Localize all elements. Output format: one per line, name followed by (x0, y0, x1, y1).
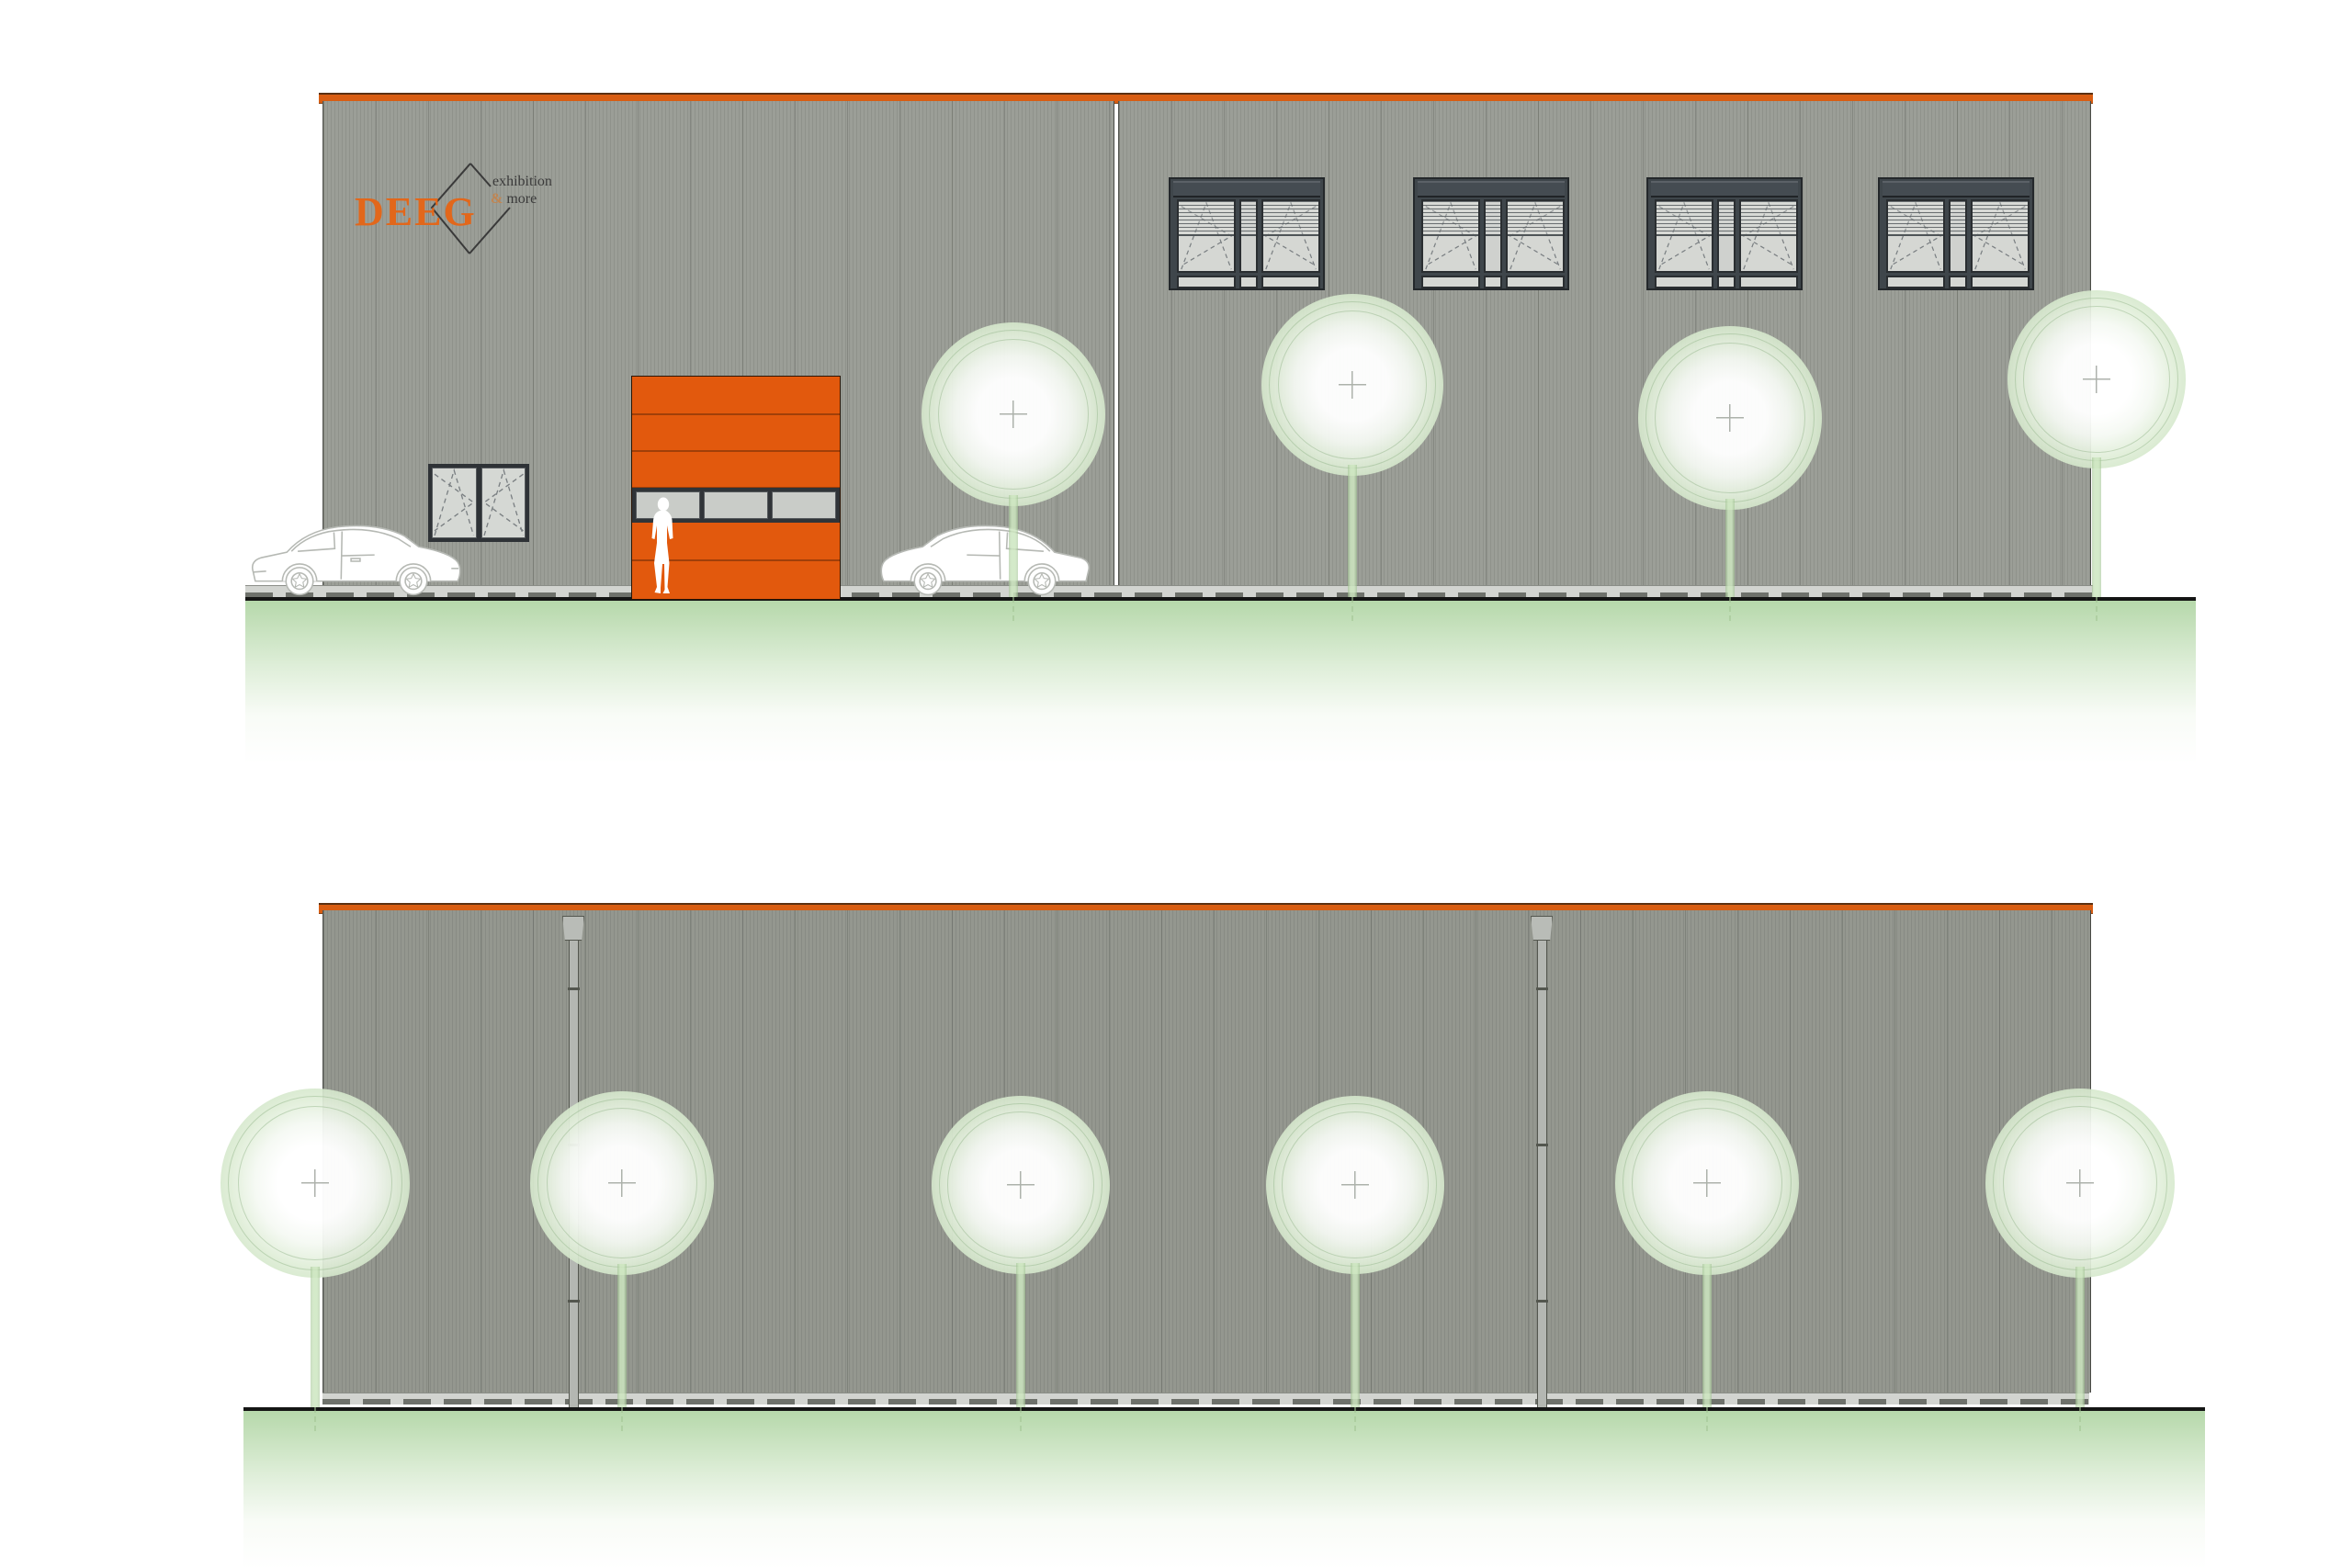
tree-trunk (2075, 1267, 2085, 1407)
rear-grass (243, 1411, 2205, 1568)
gate-panel-seam (632, 413, 840, 415)
tree-center-cross (1716, 404, 1744, 432)
tree-trunk-below-grade (1020, 1407, 1022, 1431)
roller-blind-housing (1173, 181, 1320, 197)
tree-trunk (1016, 1263, 1025, 1407)
tree-trunk (1351, 1263, 1360, 1407)
window-pane-right (1739, 199, 1798, 273)
office-window (1413, 177, 1569, 290)
tree-trunk-below-grade (1354, 1407, 1356, 1431)
tree-trunk (1009, 495, 1018, 597)
tree-trunk-below-grade (621, 1407, 623, 1431)
spandrel-panel (1739, 276, 1798, 288)
car-silhouette (876, 521, 1093, 600)
blind-slats (1973, 201, 2028, 236)
plinth-joint-dashes (322, 1399, 2089, 1404)
window-pane-right (1261, 199, 1320, 273)
roller-blind-housing (1883, 181, 2030, 197)
pipe-joint (1536, 1144, 1548, 1146)
blind-slats (1741, 201, 1796, 236)
blind-slats (1179, 201, 1234, 236)
logo-brand-text: DEEG (355, 188, 477, 235)
spandrel-panel (1506, 276, 1565, 288)
window-center-post (1717, 199, 1736, 273)
spandrel-panel (1949, 276, 1967, 288)
tree-center-cross (2066, 1169, 2094, 1197)
window-center-post (1484, 199, 1502, 273)
window-center-post (1239, 199, 1258, 273)
tree-center-cross (1693, 1169, 1721, 1197)
tree-trunk-below-grade (314, 1407, 316, 1431)
tree-trunk (617, 1264, 627, 1407)
blind-slats (1486, 201, 1500, 236)
spandrel-panel (1484, 276, 1502, 288)
tree-trunk (1348, 465, 1357, 597)
window-pane-left (1177, 199, 1236, 273)
spandrel-panel (1655, 276, 1713, 288)
office-window (1169, 177, 1325, 290)
downspout-pipe (1537, 941, 1547, 1407)
logo-tagline-line1: exhibition (492, 174, 552, 190)
window-pane-left (1655, 199, 1713, 273)
blind-slats (1657, 201, 1712, 236)
tree-trunk-below-grade (1012, 597, 1014, 621)
blind-slats (1241, 201, 1256, 236)
window-pane-right (1506, 199, 1565, 273)
blind-slats (1423, 201, 1478, 236)
pipe-joint (1536, 987, 1548, 990)
window-pane-left (1886, 199, 1945, 273)
tree-trunk (311, 1267, 320, 1407)
blind-slats (1951, 201, 1965, 236)
roller-blind-housing (1418, 181, 1565, 197)
tree-trunk-below-grade (1706, 1407, 1708, 1431)
spandrel-panel (1177, 276, 1236, 288)
tree-trunk (2092, 457, 2101, 597)
blind-slats (1263, 201, 1318, 236)
spandrel-panel (1261, 276, 1320, 288)
office-window (1878, 177, 2034, 290)
downspout-hopper (562, 916, 584, 941)
tree-center-cross (2083, 366, 2110, 393)
side-window-pane-right (481, 468, 526, 538)
tree-trunk (1725, 499, 1735, 597)
blind-slats (1508, 201, 1563, 236)
tree-center-cross (1007, 1171, 1035, 1199)
pipe-joint (568, 987, 580, 990)
window-center-post (1949, 199, 1967, 273)
logo-ampersand: & (491, 191, 503, 207)
window-pane-right (1971, 199, 2030, 273)
front-grass (245, 601, 2196, 764)
office-window (1646, 177, 1803, 290)
tree-trunk (1702, 1264, 1712, 1407)
tree-trunk-below-grade (2096, 597, 2098, 621)
blind-slats (1719, 201, 1734, 236)
tree-center-cross (1000, 400, 1027, 428)
elevation-drawing-sheet: DEEG exhibition & more (0, 0, 2352, 1568)
spandrel-panel (1886, 276, 1945, 288)
front-right-facade-wall (1118, 101, 2091, 598)
blind-slats (1888, 201, 1943, 236)
gate-glazing-pane (704, 491, 768, 519)
downspout-hopper (1531, 916, 1553, 941)
person-silhouette (649, 497, 678, 596)
pipe-joint (568, 1300, 580, 1303)
pipe-joint (1536, 1300, 1548, 1303)
spandrel-panel (1421, 276, 1480, 288)
gate-glazing-pane (772, 491, 836, 519)
gate-panel-seam (632, 450, 840, 452)
spandrel-panel (1717, 276, 1736, 288)
logo-tagline-line2: & more (491, 191, 537, 208)
roller-blind-housing (1651, 181, 1798, 197)
window-pane-left (1421, 199, 1480, 273)
tree-trunk-below-grade (1351, 597, 1353, 621)
spandrel-panel (1971, 276, 2030, 288)
tree-trunk-below-grade (2079, 1407, 2081, 1431)
rear-ground-line (243, 1407, 2205, 1411)
tree-trunk-below-grade (1729, 597, 1731, 621)
tree-center-cross (1341, 1171, 1369, 1199)
tree-center-cross (608, 1169, 636, 1197)
front-ground-line (245, 597, 2196, 601)
tree-center-cross (1339, 371, 1366, 399)
tree-center-cross (301, 1169, 329, 1197)
car-silhouette (248, 521, 465, 600)
rear-plinth-strip (322, 1393, 2089, 1404)
spandrel-panel (1239, 276, 1258, 288)
